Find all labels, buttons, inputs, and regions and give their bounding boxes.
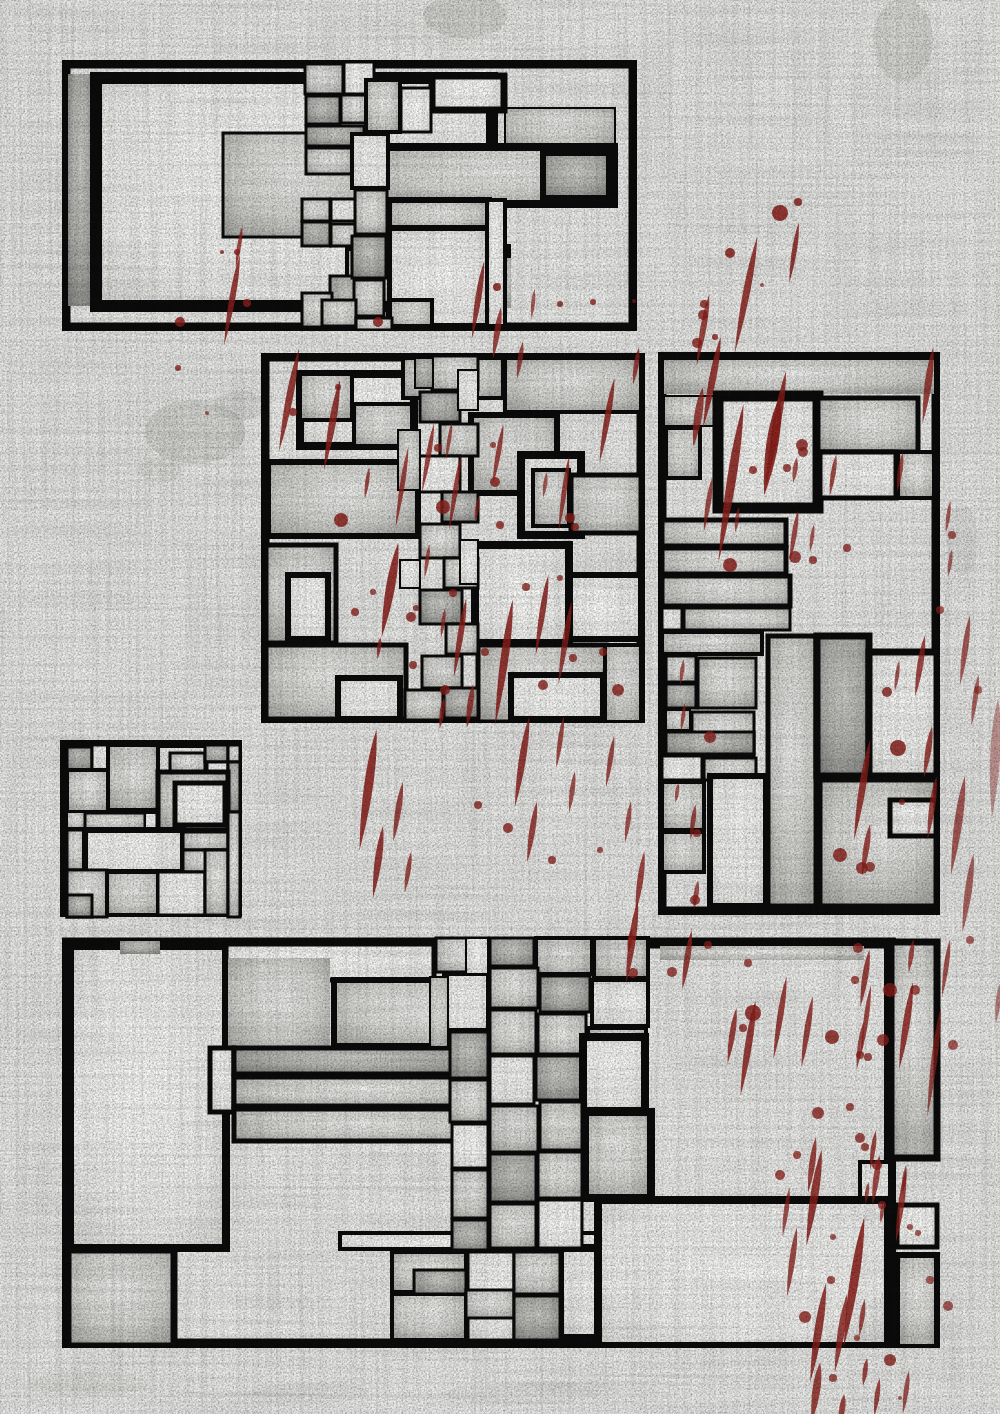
texture-layer — [0, 0, 1000, 1414]
artwork-svg — [0, 0, 1000, 1414]
grain-texture — [0, 0, 1000, 1414]
dungeon-blueprint-artwork — [0, 0, 1000, 1414]
